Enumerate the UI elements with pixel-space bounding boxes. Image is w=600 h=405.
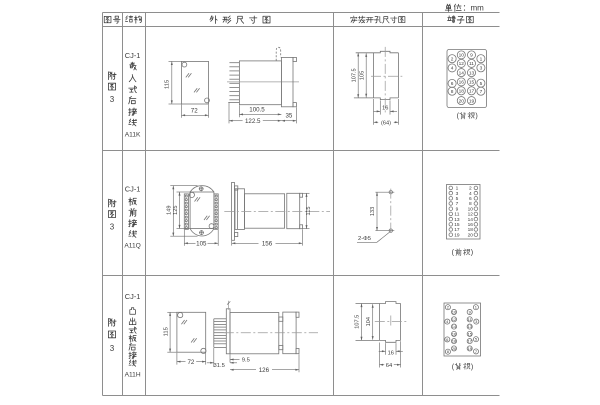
svg-text:15: 15: [467, 331, 472, 336]
svg-text:3: 3: [110, 344, 115, 353]
svg-text:107.5: 107.5: [354, 315, 360, 329]
svg-text:14: 14: [452, 324, 457, 329]
svg-text:15: 15: [469, 80, 475, 86]
svg-text:18: 18: [459, 89, 465, 95]
svg-text:15: 15: [454, 222, 460, 228]
svg-text:125: 125: [173, 206, 179, 215]
svg-text:11: 11: [469, 61, 474, 67]
svg-text:A11Q: A11Q: [124, 243, 140, 250]
svg-text:2-Φ5: 2-Φ5: [358, 236, 371, 242]
svg-text:4: 4: [451, 66, 454, 72]
svg-text:1: 1: [456, 186, 459, 192]
svg-text:122.5: 122.5: [245, 118, 261, 125]
svg-text:10: 10: [452, 310, 457, 315]
svg-text:12: 12: [452, 317, 457, 322]
svg-text:19: 19: [467, 346, 472, 351]
svg-text:：mm: ：mm: [463, 4, 485, 13]
svg-text:16: 16: [388, 351, 394, 357]
svg-text:2: 2: [469, 186, 472, 192]
svg-text:CJ-1: CJ-1: [125, 185, 141, 194]
svg-text:10: 10: [459, 53, 465, 59]
svg-text:156: 156: [262, 241, 273, 248]
svg-text:115: 115: [306, 207, 312, 216]
svg-text:(64): (64): [381, 120, 391, 126]
svg-text:105: 105: [196, 241, 207, 248]
svg-text:16: 16: [468, 222, 474, 228]
svg-text:16: 16: [459, 80, 465, 86]
svg-text:16: 16: [382, 105, 388, 111]
svg-text:13: 13: [469, 70, 475, 76]
svg-text:A11H: A11H: [125, 371, 141, 378]
svg-text:17: 17: [467, 339, 472, 344]
svg-text:14: 14: [459, 70, 465, 76]
svg-text:1: 1: [480, 57, 483, 63]
svg-text:133: 133: [370, 207, 376, 216]
svg-text:12: 12: [459, 61, 465, 67]
svg-text:149: 149: [167, 206, 173, 215]
svg-text:17: 17: [469, 89, 475, 95]
svg-text:19: 19: [454, 232, 460, 238]
svg-text:13: 13: [454, 217, 460, 223]
svg-text:CJ-1: CJ-1: [125, 51, 141, 60]
svg-text:5: 5: [480, 81, 483, 87]
svg-text:4: 4: [469, 191, 472, 197]
svg-text:115: 115: [165, 80, 171, 89]
svg-text:): ): [471, 362, 473, 371]
svg-text:16: 16: [452, 331, 457, 336]
svg-text:5: 5: [456, 196, 459, 202]
svg-text:20: 20: [468, 232, 474, 238]
svg-text:12: 12: [468, 212, 474, 218]
svg-text:13: 13: [467, 324, 472, 329]
svg-text:8: 8: [469, 201, 472, 207]
svg-text:126: 126: [259, 367, 270, 374]
svg-text:): ): [475, 111, 477, 120]
svg-text:3: 3: [110, 223, 115, 232]
svg-text:20: 20: [452, 346, 457, 351]
svg-text:11: 11: [454, 212, 459, 218]
svg-text:115: 115: [163, 327, 169, 336]
svg-text:CJ-1: CJ-1: [125, 292, 141, 301]
svg-text:104: 104: [366, 317, 372, 326]
svg-text:6: 6: [451, 81, 454, 87]
svg-text:2: 2: [451, 57, 454, 63]
svg-text:105: 105: [359, 71, 365, 80]
svg-text:64: 64: [386, 363, 393, 369]
svg-text:): ): [471, 248, 473, 257]
svg-text:18: 18: [468, 227, 474, 233]
svg-text:31.5: 31.5: [214, 363, 225, 369]
svg-text:19: 19: [469, 98, 475, 104]
svg-text:72: 72: [191, 108, 198, 115]
svg-text:72: 72: [187, 359, 194, 366]
svg-text:3: 3: [456, 191, 459, 197]
svg-text:9.5: 9.5: [242, 358, 250, 364]
svg-text:17: 17: [454, 227, 460, 233]
svg-text:A11K: A11K: [125, 131, 141, 138]
svg-text:6: 6: [469, 196, 472, 202]
svg-text:100.5: 100.5: [249, 107, 265, 114]
svg-text:18: 18: [452, 339, 457, 344]
svg-text:9: 9: [470, 53, 473, 59]
svg-text:20: 20: [459, 98, 465, 104]
svg-text:9: 9: [456, 206, 459, 212]
svg-text:3: 3: [480, 66, 483, 72]
svg-text:107.5: 107.5: [351, 68, 357, 82]
svg-text:10: 10: [468, 206, 474, 212]
svg-text:14: 14: [468, 217, 474, 223]
svg-text:8: 8: [451, 89, 454, 95]
svg-text:3: 3: [110, 95, 115, 104]
svg-text:7: 7: [456, 201, 459, 207]
svg-text:35: 35: [285, 112, 292, 119]
svg-text:7: 7: [480, 89, 483, 95]
